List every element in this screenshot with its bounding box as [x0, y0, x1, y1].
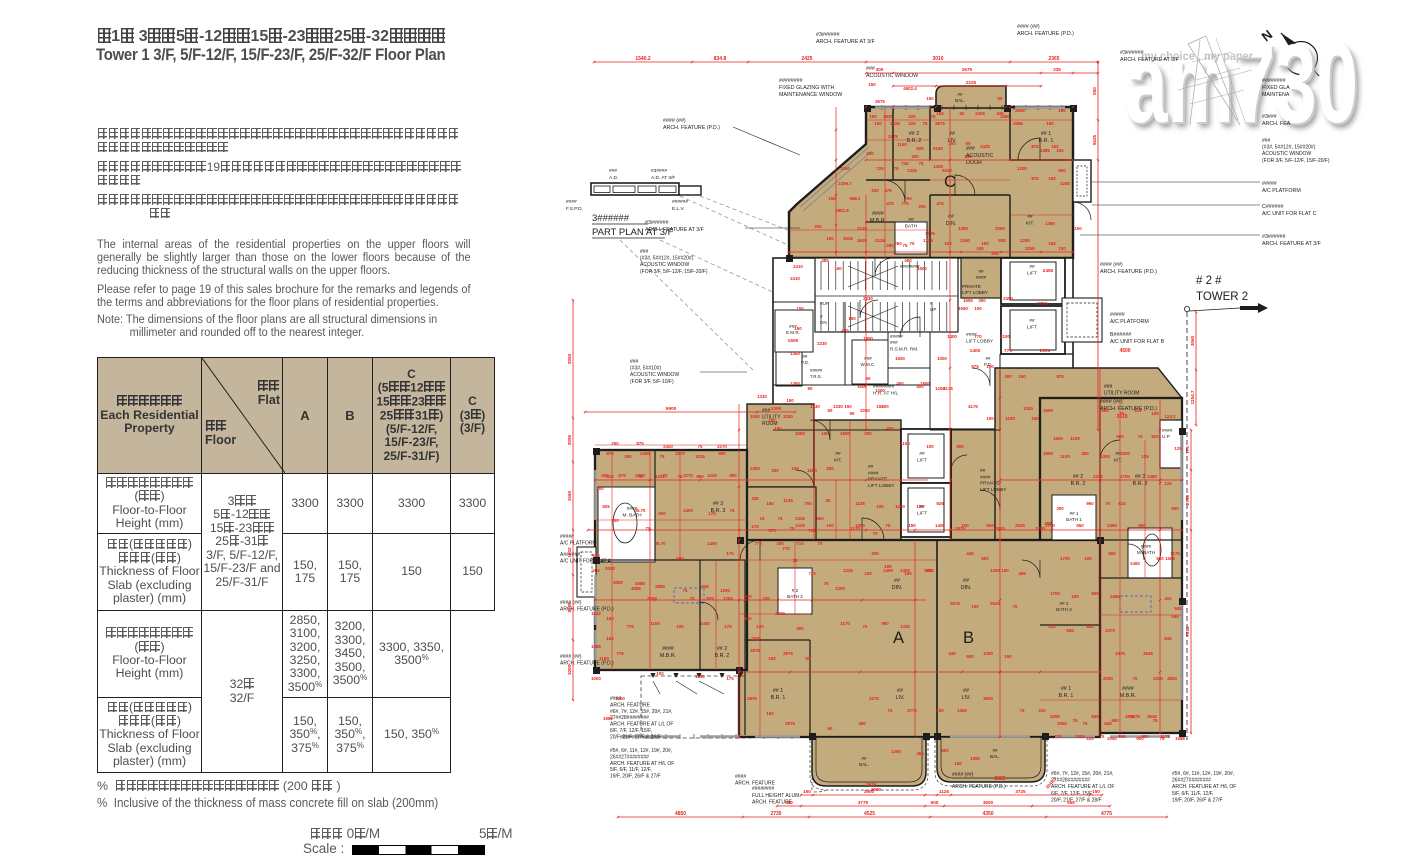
- svg-text:75: 75: [663, 473, 668, 478]
- svg-text:(FOR 3/F, 5/F-12/F, 15/F-20/F): (FOR 3/F, 5/F-12/F, 15/F-20/F): [640, 269, 708, 275]
- svg-text:ARCH. FEATURE AT 3/F: ARCH. FEATURE AT 3/F: [1262, 241, 1322, 247]
- svg-text:150: 150: [844, 404, 852, 409]
- svg-text:1000: 1000: [771, 406, 782, 412]
- svg-text:600: 600: [658, 511, 666, 516]
- svg-text:#3####: #3####: [651, 168, 667, 174]
- svg-text:100: 100: [1071, 594, 1079, 599]
- svg-text:2425: 2425: [975, 111, 985, 116]
- svg-text:75: 75: [660, 454, 665, 459]
- svg-text:##: ##: [861, 756, 867, 761]
- svg-text:1325: 1325: [795, 516, 805, 521]
- svg-text:2750: 2750: [1037, 301, 1047, 306]
- svg-text:150: 150: [848, 316, 856, 321]
- svg-text:E.L.V.: E.L.V.: [672, 206, 685, 212]
- svg-text:770: 770: [782, 546, 790, 551]
- svg-text:KIT.: KIT.: [834, 457, 842, 463]
- svg-text:300: 300: [956, 444, 964, 449]
- svg-text:4350: 4350: [982, 811, 993, 817]
- svg-text:1150: 1150: [897, 142, 907, 147]
- svg-text:100: 100: [981, 241, 989, 246]
- svg-text:1000: 1000: [591, 676, 601, 681]
- svg-text:TOWER 2: TOWER 2: [1196, 291, 1248, 303]
- svg-text:#3######: #3######: [1262, 234, 1286, 240]
- svg-text:2050: 2050: [1057, 721, 1067, 726]
- svg-text:150: 150: [796, 306, 804, 311]
- svg-text:150: 150: [1074, 226, 1082, 231]
- svg-text:150: 150: [766, 711, 774, 716]
- svg-text:150: 150: [606, 636, 614, 641]
- svg-text:3600: 3600: [983, 800, 994, 805]
- svg-text:450: 450: [785, 800, 793, 805]
- svg-text:2095: 2095: [567, 434, 572, 445]
- svg-text:3725: 3725: [1015, 789, 1026, 794]
- svg-text:1450: 1450: [700, 621, 710, 626]
- svg-text:1600: 1600: [788, 338, 799, 344]
- svg-text:2450: 2450: [663, 444, 673, 449]
- svg-text:2000: 2000: [613, 580, 623, 585]
- svg-text:1600: 1600: [840, 431, 850, 436]
- svg-text:2250: 2250: [995, 226, 1005, 231]
- svg-text:A/C UNIT FOR FLAT A: A/C UNIT FOR FLAT A: [560, 559, 612, 565]
- svg-text:LIFT: LIFT: [1027, 324, 1037, 330]
- svg-text:###: ###: [866, 66, 875, 72]
- svg-text:##: ##: [897, 688, 903, 694]
- svg-text:1350: 1350: [960, 238, 970, 243]
- svg-text:100: 100: [826, 236, 834, 241]
- svg-text:300: 300: [911, 154, 919, 159]
- svg-text:M.B.R.: M.B.R.: [1120, 693, 1136, 699]
- svg-text:100: 100: [944, 241, 952, 246]
- svg-text:W.M.C.: W.M.C.: [860, 362, 875, 367]
- svg-text:F.S.P.D.: F.S.P.D.: [566, 206, 583, 212]
- svg-text:2625: 2625: [843, 236, 853, 241]
- svg-text:26##27########: 26##27########: [610, 754, 649, 760]
- svg-text:(#3#, 5##12#, 15##20#): (#3#, 5##12#, 15##20#): [640, 256, 694, 262]
- svg-text:2410: 2410: [790, 276, 800, 281]
- svg-text:UTILITY ROOM: UTILITY ROOM: [1104, 391, 1139, 397]
- svg-text:##: ##: [835, 451, 841, 457]
- svg-text:925: 925: [602, 504, 610, 509]
- svg-text:19/F, 20/F, 26/F & 27/F: 19/F, 20/F, 26/F & 27/F: [610, 774, 661, 780]
- svg-text:100: 100: [656, 671, 664, 676]
- svg-text:4525: 4525: [864, 811, 875, 817]
- svg-text:100: 100: [869, 114, 877, 119]
- svg-text:2250: 2250: [795, 431, 805, 436]
- svg-text:BAL.: BAL.: [990, 754, 1000, 759]
- svg-text:150: 150: [768, 418, 776, 423]
- svg-text:#### (##): #### (##): [952, 772, 974, 778]
- svg-text:950: 950: [696, 474, 704, 479]
- svg-text:950: 950: [881, 621, 889, 626]
- svg-text:845: 845: [1086, 624, 1094, 629]
- svg-text:925: 925: [592, 553, 600, 558]
- svg-text:875: 875: [636, 441, 644, 446]
- svg-text:(#3#, 5##12#, 15##20#): (#3#, 5##12#, 15##20#): [1262, 145, 1316, 151]
- svg-text:2135: 2135: [875, 238, 885, 243]
- svg-text:DIN.: DIN.: [961, 585, 972, 591]
- svg-text:410: 410: [1164, 596, 1172, 601]
- svg-text:####: ####: [872, 211, 884, 217]
- svg-text:6/F, 7/F, 12/F, 15/F,: 6/F, 7/F, 12/F, 15/F,: [1051, 791, 1093, 797]
- svg-text:200: 200: [871, 188, 879, 193]
- svg-text:300: 300: [978, 298, 986, 303]
- svg-text:900: 900: [1138, 523, 1146, 528]
- svg-text:400: 400: [886, 426, 894, 431]
- svg-text:250: 250: [601, 473, 609, 478]
- svg-text:###: ###: [966, 146, 975, 152]
- svg-text:1560: 1560: [567, 490, 572, 501]
- svg-text:250: 250: [886, 243, 894, 248]
- svg-text:35.70: 35.70: [635, 508, 647, 513]
- svg-text:3######: 3######: [592, 213, 630, 224]
- svg-text:####: ####: [1141, 544, 1152, 549]
- svg-text:ARCH. FEATURE (P.D.): ARCH. FEATURE (P.D.): [663, 125, 720, 131]
- svg-text:###: ###: [1104, 384, 1113, 390]
- svg-text:1150: 1150: [650, 621, 660, 626]
- svg-text:1325: 1325: [795, 523, 805, 528]
- svg-text:1600: 1600: [807, 468, 817, 473]
- svg-text:75: 75: [903, 243, 908, 248]
- svg-text:2100: 2100: [1000, 334, 1010, 339]
- svg-text:4175: 4175: [968, 404, 978, 409]
- svg-text:LIFT LOBBY: LIFT LOBBY: [980, 487, 1007, 492]
- svg-text:1550: 1550: [963, 298, 973, 303]
- svg-text:90: 90: [850, 411, 855, 416]
- svg-text:3545: 3545: [1143, 651, 1153, 656]
- svg-text:BAL.: BAL.: [955, 98, 965, 103]
- svg-text:75: 75: [690, 596, 695, 601]
- svg-text:75: 75: [1020, 708, 1025, 713]
- svg-text:#5#, 6#, 11#, 12#, 19#, 20#,: #5#, 6#, 11#, 12#, 19#, 20#,: [1172, 771, 1234, 777]
- svg-text:A/C PLATFORM: A/C PLATFORM: [1262, 188, 1301, 194]
- svg-text:200: 200: [592, 568, 600, 573]
- svg-text:#6#, 7#, 12#, 15#, 20#, 21#,: #6#, 7#, 12#, 15#, 20#, 21#,: [1051, 771, 1114, 777]
- svg-text:19/F, 20/F, 26/F & 27/F: 19/F, 20/F, 26/F & 27/F: [1172, 797, 1223, 803]
- svg-text:2000: 2000: [605, 566, 615, 571]
- svg-text:LIFT LOBBY: LIFT LOBBY: [868, 483, 895, 488]
- svg-text:#3######: #3######: [645, 220, 669, 226]
- svg-text:960: 960: [1086, 501, 1094, 506]
- svg-text:150: 150: [606, 616, 614, 621]
- svg-text:## 3: ## 3: [713, 501, 723, 507]
- svg-text:150: 150: [1046, 121, 1054, 126]
- svg-text:2100: 2100: [1040, 348, 1051, 354]
- svg-text:## 2: ## 2: [1060, 601, 1069, 606]
- svg-text:100: 100: [826, 523, 834, 528]
- svg-text:300: 300: [876, 67, 884, 72]
- svg-text:75: 75: [778, 516, 783, 521]
- svg-text:945: 945: [1066, 628, 1074, 633]
- svg-text:710: 710: [796, 541, 804, 546]
- svg-text:3475: 3475: [1115, 651, 1125, 656]
- svg-text:200: 200: [596, 486, 604, 491]
- svg-text:75: 75: [1138, 434, 1143, 439]
- svg-text:3600: 3600: [983, 696, 993, 701]
- svg-text:1700: 1700: [1050, 591, 1060, 596]
- svg-text:170: 170: [726, 551, 734, 556]
- svg-text:########: ########: [1262, 78, 1286, 84]
- svg-text:1550: 1550: [958, 306, 968, 311]
- svg-text:100: 100: [821, 431, 829, 436]
- svg-text:2250: 2250: [1020, 238, 1030, 243]
- svg-text:90: 90: [828, 408, 833, 413]
- svg-text:735: 735: [901, 161, 909, 166]
- svg-text:DN: DN: [820, 320, 827, 325]
- svg-text:150: 150: [986, 364, 994, 369]
- svg-text:710: 710: [808, 528, 816, 533]
- svg-text:400: 400: [896, 381, 904, 386]
- svg-text:450: 450: [1067, 800, 1075, 805]
- svg-text:2475: 2475: [888, 134, 898, 139]
- svg-text:1400: 1400: [947, 334, 957, 339]
- svg-text:A.D. AT 3/F: A.D. AT 3/F: [651, 175, 675, 181]
- svg-text:4085: 4085: [631, 586, 641, 591]
- svg-text:1150: 1150: [599, 656, 609, 661]
- svg-text:2156.7: 2156.7: [838, 181, 852, 186]
- svg-text:1400: 1400: [895, 504, 905, 509]
- svg-text:#### (##): #### (##): [1100, 399, 1123, 405]
- svg-text:1135: 1135: [783, 498, 793, 503]
- svg-text:2270: 2270: [683, 473, 693, 478]
- svg-text:825: 825: [701, 584, 709, 589]
- svg-text:925: 925: [936, 501, 944, 506]
- svg-text:300: 300: [1056, 506, 1064, 511]
- svg-text:2875: 2875: [751, 636, 761, 641]
- svg-text:300: 300: [1081, 451, 1089, 456]
- svg-text:## 3: ## 3: [1135, 474, 1145, 480]
- svg-text:2450: 2450: [1003, 296, 1013, 301]
- svg-text:150: 150: [1018, 374, 1026, 379]
- svg-text:3475: 3475: [1105, 628, 1115, 633]
- svg-text:35: 35: [793, 558, 798, 563]
- svg-text:1500: 1500: [1043, 451, 1053, 456]
- svg-text:200: 200: [904, 196, 912, 201]
- svg-text:300: 300: [744, 594, 752, 599]
- svg-text:150: 150: [774, 426, 782, 431]
- svg-text:250: 250: [624, 454, 632, 459]
- svg-text:ARCH. FEATURE (P.D.): ARCH. FEATURE (P.D.): [1017, 31, 1074, 37]
- svg-text:4175: 4175: [943, 386, 953, 391]
- svg-text:170: 170: [708, 511, 716, 516]
- svg-text:125: 125: [1174, 446, 1182, 451]
- svg-text:475: 475: [884, 188, 892, 193]
- svg-text:150: 150: [834, 266, 842, 271]
- svg-text:775: 775: [1185, 446, 1190, 454]
- svg-text:200: 200: [611, 518, 619, 523]
- svg-text:150: 150: [936, 111, 944, 116]
- svg-text:100: 100: [936, 708, 944, 713]
- svg-text:1170: 1170: [840, 621, 850, 626]
- svg-text:825: 825: [706, 596, 714, 601]
- svg-text:75: 75: [910, 241, 915, 246]
- svg-text:1700: 1700: [1120, 474, 1130, 479]
- svg-text:750: 750: [804, 501, 812, 506]
- svg-text:KIT.: KIT.: [1026, 220, 1034, 226]
- svg-text:875: 875: [1031, 144, 1039, 149]
- svg-text:1532: 1532: [591, 611, 601, 616]
- svg-text:2410: 2410: [793, 264, 803, 269]
- svg-text:70: 70: [873, 531, 878, 536]
- svg-text:2275: 2275: [869, 696, 879, 701]
- svg-text:770: 770: [1004, 348, 1012, 354]
- svg-text:950: 950: [729, 473, 737, 478]
- svg-text:150: 150: [1058, 108, 1066, 113]
- svg-text:75: 75: [824, 581, 829, 586]
- svg-text:1450: 1450: [695, 674, 705, 679]
- svg-text:2050: 2050: [1050, 714, 1060, 719]
- svg-text:2050: 2050: [1075, 734, 1085, 739]
- svg-text:26##27########: 26##27########: [1172, 778, 1211, 784]
- svg-text:100: 100: [1048, 176, 1056, 181]
- svg-text:1500: 1500: [1120, 451, 1130, 456]
- svg-text:2425: 2425: [980, 144, 990, 149]
- svg-text:35.70: 35.70: [655, 541, 667, 546]
- svg-text:2425: 2425: [801, 56, 812, 62]
- svg-text:175: 175: [724, 624, 732, 629]
- svg-text:815: 815: [1118, 501, 1126, 506]
- svg-text:DIN.: DIN.: [946, 221, 957, 227]
- svg-text:150: 150: [794, 326, 802, 331]
- svg-text:75: 75: [730, 508, 735, 513]
- svg-text:#####: #####: [560, 534, 574, 540]
- svg-text:3900: 3900: [871, 787, 882, 792]
- svg-text:B.R. 1: B.R. 1: [771, 695, 786, 701]
- svg-text:A/C PLATFORM: A/C PLATFORM: [1110, 319, 1149, 325]
- svg-text:475: 475: [886, 201, 894, 206]
- svg-text:LIV.: LIV.: [962, 695, 971, 701]
- svg-text:LIFT: LIFT: [917, 457, 927, 463]
- svg-text:C######: C######: [1262, 204, 1284, 210]
- svg-text:2600: 2600: [775, 611, 785, 616]
- svg-text:3775: 3775: [858, 800, 869, 805]
- svg-text:2460: 2460: [1110, 594, 1120, 599]
- svg-text:1825: 1825: [883, 114, 893, 119]
- svg-text:75: 75: [888, 708, 893, 713]
- svg-text:1175: 1175: [1160, 734, 1170, 739]
- svg-text:R.S.M.R. RM.: R.S.M.R. RM.: [890, 346, 918, 351]
- svg-text:330: 330: [771, 468, 779, 473]
- svg-text:100: 100: [874, 121, 882, 126]
- svg-text:845: 845: [1164, 636, 1172, 641]
- svg-text:75: 75: [698, 444, 703, 449]
- svg-text:950: 950: [816, 516, 824, 521]
- svg-text:150: 150: [954, 761, 962, 766]
- svg-text:ARCH. FEA: ARCH. FEA: [1262, 121, 1291, 127]
- svg-text:## 1: ## 1: [1041, 131, 1051, 137]
- svg-text:27##28########: 27##28########: [610, 715, 649, 721]
- svg-text:845: 845: [1118, 734, 1126, 739]
- svg-text:170: 170: [751, 524, 759, 529]
- svg-text:150: 150: [1092, 789, 1100, 794]
- svg-text:545: 545: [1171, 614, 1179, 619]
- svg-text:850: 850: [1092, 87, 1097, 95]
- svg-text:ARCH. FEATURE AT L/L OF: ARCH. FEATURE AT L/L OF: [610, 722, 673, 728]
- svg-text:2750: 2750: [1185, 494, 1190, 505]
- svg-text:75: 75: [683, 588, 688, 593]
- svg-text:75: 75: [886, 523, 891, 528]
- svg-text:2065: 2065: [1015, 108, 1025, 113]
- svg-text:###: ###: [762, 408, 771, 414]
- svg-text:1400: 1400: [707, 541, 717, 546]
- svg-text:###: ###: [630, 359, 639, 365]
- svg-text:##: ##: [980, 468, 986, 473]
- svg-text:935: 935: [998, 238, 1006, 243]
- svg-text:90: 90: [866, 376, 871, 381]
- svg-text:300: 300: [871, 551, 879, 556]
- svg-text:#####: #####: [1262, 181, 1277, 187]
- svg-text:305: 305: [776, 541, 784, 546]
- svg-text:968.1: 968.1: [850, 196, 862, 201]
- svg-text:550: 550: [1091, 591, 1099, 596]
- svg-text:150: 150: [766, 501, 774, 506]
- svg-text:LIV.: LIV.: [896, 695, 905, 701]
- svg-text:1254.7: 1254.7: [1190, 390, 1195, 404]
- svg-text:1200: 1200: [835, 586, 845, 591]
- svg-text:485: 485: [821, 258, 829, 263]
- svg-text:1150: 1150: [840, 166, 850, 171]
- svg-text:####: ####: [662, 646, 674, 652]
- svg-text:1400: 1400: [970, 348, 981, 354]
- svg-text:##: ##: [919, 451, 925, 457]
- svg-text:400: 400: [904, 258, 912, 263]
- svg-text:1330: 1330: [783, 414, 793, 419]
- svg-text:945: 945: [1174, 606, 1182, 611]
- svg-text:200: 200: [762, 596, 770, 601]
- svg-text:600: 600: [1058, 168, 1066, 173]
- svg-text:M. BATH: M. BATH: [622, 512, 642, 518]
- svg-text:##: ##: [908, 217, 914, 223]
- svg-text:150: 150: [786, 398, 794, 403]
- svg-text:UP: UP: [930, 307, 936, 312]
- svg-text:100: 100: [876, 504, 884, 509]
- svg-text:250: 250: [611, 441, 619, 446]
- svg-text:1325: 1325: [907, 168, 917, 173]
- svg-text:1360: 1360: [1045, 221, 1055, 226]
- svg-text:1250: 1250: [891, 749, 901, 754]
- svg-text:300: 300: [1004, 374, 1012, 379]
- svg-text:7550: 7550: [1185, 626, 1190, 637]
- svg-text:DIN.: DIN.: [892, 585, 903, 591]
- svg-text:#UP: #UP: [820, 301, 829, 306]
- svg-text:#3######: #3######: [1120, 50, 1144, 56]
- svg-text:5900: 5900: [666, 406, 677, 412]
- svg-text:1350: 1350: [958, 226, 968, 231]
- svg-text:##: ##: [868, 464, 874, 469]
- svg-text:100: 100: [864, 571, 872, 576]
- svg-text:KIT.: KIT.: [1114, 457, 1122, 463]
- svg-text:815: 815: [1151, 434, 1159, 439]
- svg-text:1500: 1500: [895, 356, 905, 361]
- svg-text:445: 445: [948, 651, 956, 656]
- svg-text:75: 75: [1013, 604, 1018, 609]
- svg-text:A/C UNIT FOR FLAT B: A/C UNIT FOR FLAT B: [1110, 339, 1165, 345]
- svg-text:2625: 2625: [857, 238, 867, 243]
- svg-text:#####: #####: [890, 334, 903, 339]
- svg-text:####: ####: [868, 470, 879, 475]
- svg-text:##: ##: [948, 214, 954, 220]
- svg-text:###: ###: [1262, 138, 1271, 144]
- svg-text:2875: 2875: [747, 696, 757, 701]
- svg-text:5/F, 6/F, 11/F, 12/F,: 5/F, 6/F, 11/F, 12/F,: [610, 767, 652, 773]
- svg-text:LIFT: LIFT: [917, 510, 927, 516]
- svg-text:1588: 1588: [1175, 736, 1185, 741]
- svg-text:BATH: BATH: [905, 223, 918, 229]
- svg-text:3775: 3775: [907, 708, 917, 713]
- svg-text:1200: 1200: [1017, 166, 1027, 171]
- svg-text:1400: 1400: [683, 508, 693, 513]
- svg-text:2675: 2675: [935, 121, 945, 126]
- svg-text:90: 90: [808, 386, 813, 391]
